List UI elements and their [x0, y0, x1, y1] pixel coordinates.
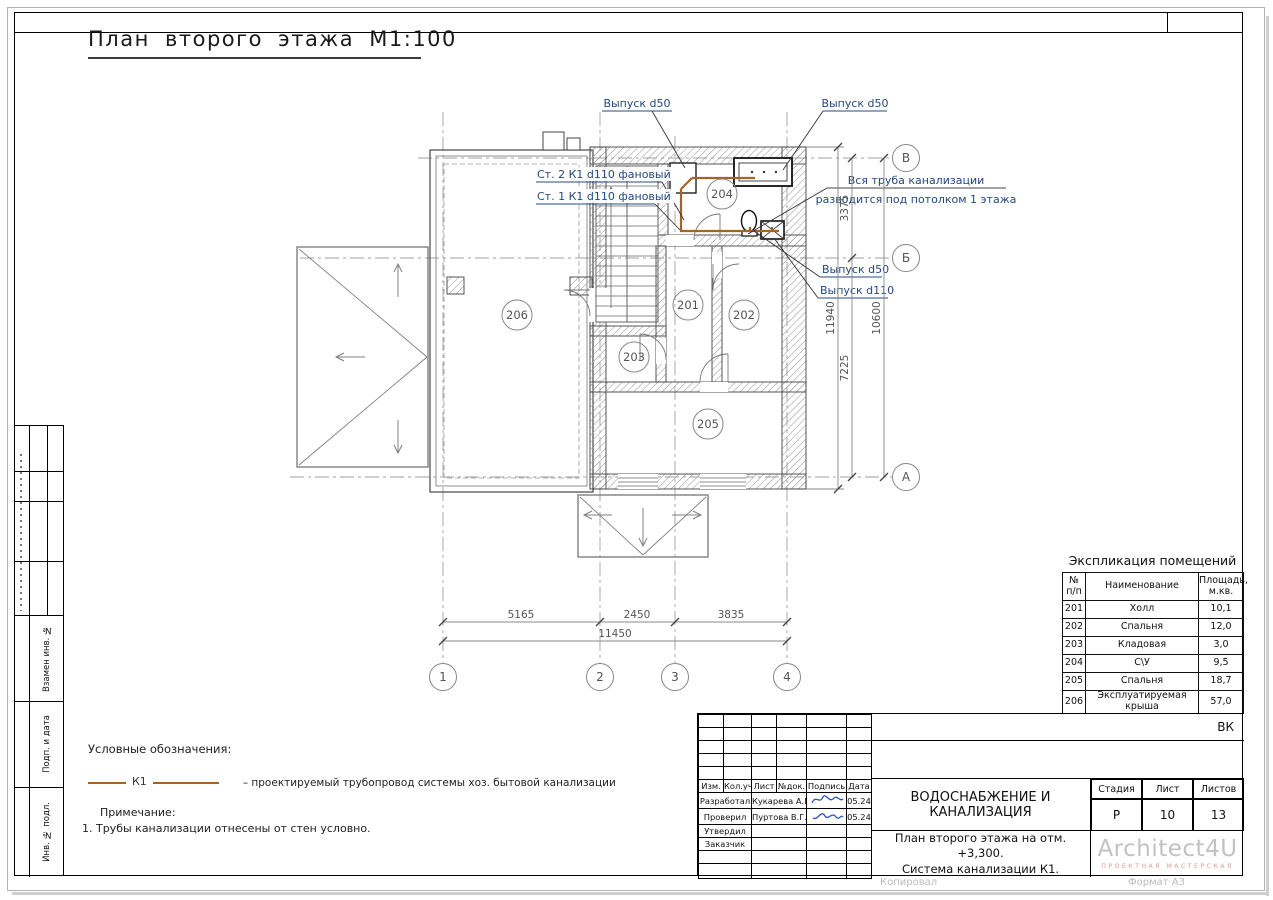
- project-title: ВОДОСНАБЖЕНИЕ И КАНАЛИЗАЦИЯ: [871, 779, 1091, 831]
- k1-line-segment: [153, 782, 219, 784]
- table-row: 202Спальня12,0: [1063, 619, 1244, 637]
- table-row: 206Эксплуатируемая крыша57,0: [1063, 691, 1244, 714]
- signature: [807, 793, 847, 809]
- company-logo: Architect4U ПРОЕКТНАЯ МАСТЕРСКАЯ: [1091, 831, 1244, 877]
- tb-header-row: Изм.Кол.уч. Лист№док. ПодписьДата: [699, 780, 872, 793]
- note-text: 1. Трубы канализации отнесены от стен ус…: [82, 822, 371, 835]
- legend-title: Условные обозначения:: [88, 742, 231, 756]
- document-title: План второго этажа на отм. +3,300. Систе…: [871, 831, 1091, 877]
- side-stamp-line: [47, 426, 48, 615]
- col-num-header: №п/п: [1063, 573, 1086, 601]
- signature: [807, 809, 847, 825]
- logo-subtitle: ПРОЕКТНАЯ МАСТЕРСКАЯ: [1101, 863, 1234, 870]
- sheets-value: 13: [1193, 799, 1244, 831]
- side-stamp-line: [15, 561, 63, 562]
- footer-format: Формат А3: [1128, 877, 1185, 888]
- stage-label: Стадия: [1091, 779, 1142, 799]
- side-stamp-line: [29, 426, 30, 615]
- tiny-marks: [20, 454, 22, 611]
- legend-k1-row: К1 – проектируемый трубопровод системы х…: [88, 776, 616, 789]
- note-title: Примечание:: [100, 806, 176, 819]
- tb-empty-band: [871, 741, 1244, 779]
- footer-kopiroval: Копировал: [880, 877, 937, 888]
- doc-code: ВК: [871, 714, 1244, 741]
- sheets-label: Листов: [1193, 779, 1244, 799]
- sheet-value: 10: [1142, 799, 1193, 831]
- tb-row-developed: РазработалКукарева А.М. 05.24: [699, 793, 872, 809]
- room-schedule-table: №п/п Наименование Площадь,м.кв. 201Холл1…: [1062, 572, 1244, 714]
- table-row: 204С\У9,5: [1063, 655, 1244, 673]
- tb-row-approved: Утвердил: [699, 825, 872, 838]
- sheet-label: Лист: [1142, 779, 1193, 799]
- k1-label: К1: [132, 775, 147, 788]
- top-strip-divider: [1167, 13, 1168, 32]
- col-name-header: Наименование: [1086, 573, 1199, 601]
- vzamen-cell: Взамен инв. №: [29, 615, 65, 701]
- table-row: 205Спальня18,7: [1063, 673, 1244, 691]
- inv-cell: Инв. № подл.: [29, 787, 65, 877]
- document-title-line1: План второго этажа на отм. +3,300.: [871, 831, 1090, 862]
- side-stamp: Взамен инв. № Подп. и дата Инв. № подл.: [14, 425, 64, 876]
- tb-row-customer: Заказчик: [699, 838, 872, 851]
- document-title-line2: Система канализации К1.: [902, 862, 1059, 878]
- podp-label: Подп. и дата: [42, 715, 52, 773]
- drawing-sheet: План второго этажа М1:100: [0, 0, 1273, 900]
- side-stamp-line: [15, 501, 63, 502]
- room-schedule-title: Экспликация помещений: [1062, 553, 1243, 568]
- room-schedule: Экспликация помещений №п/п Наименование …: [1062, 553, 1243, 714]
- vzamen-label: Взамен инв. №: [42, 625, 52, 692]
- logo-text: Architect4U: [1097, 838, 1237, 861]
- stage-value: Р: [1091, 799, 1142, 831]
- side-stamp-line: [15, 471, 63, 472]
- table-row: 203Кладовая3,0: [1063, 637, 1244, 655]
- inv-label: Инв. № подл.: [42, 802, 52, 862]
- k1-description: – проектируемый трубопровод системы хоз.…: [243, 777, 616, 789]
- k1-line-segment: [88, 782, 126, 784]
- title-block: Изм.Кол.уч. Лист№док. ПодписьДата Разраб…: [697, 713, 1243, 876]
- paper-shadow-bottom: [12, 892, 1269, 895]
- tb-row-checked: ПроверилПуртова В.Г. 05.24: [699, 809, 872, 825]
- table-header-row: №п/п Наименование Площадь,м.кв.: [1063, 573, 1244, 601]
- paper-shadow-right: [1266, 16, 1269, 896]
- podp-cell: Подп. и дата: [29, 701, 65, 787]
- page-title: План второго этажа М1:100: [88, 27, 457, 51]
- table-row: 201Холл10,1: [1063, 601, 1244, 619]
- col-area-header: Площадь,м.кв.: [1199, 573, 1244, 601]
- title-block-grid: Изм.Кол.уч. Лист№док. ПодписьДата Разраб…: [698, 714, 872, 879]
- page-title-underline: [88, 57, 421, 59]
